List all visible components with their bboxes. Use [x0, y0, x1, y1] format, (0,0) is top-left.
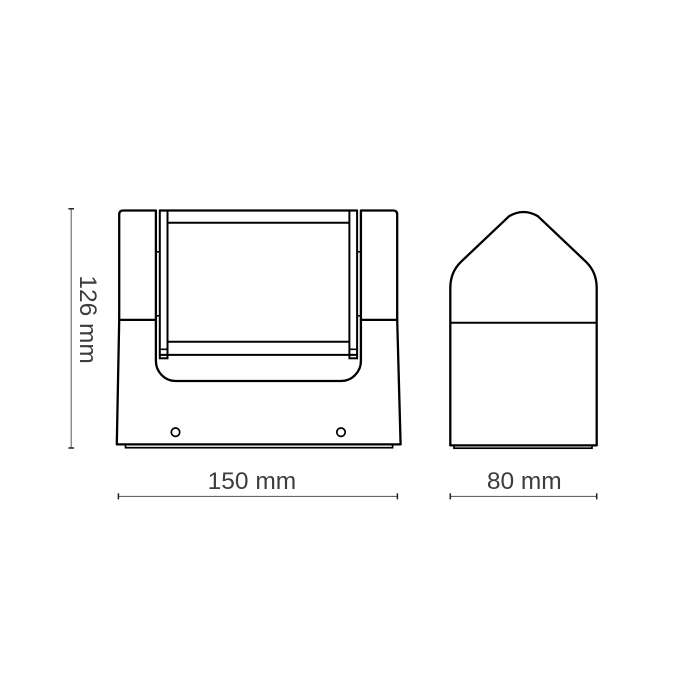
svg-text:80 mm: 80 mm	[487, 468, 562, 495]
svg-text:150 mm: 150 mm	[208, 468, 297, 495]
svg-text:126 mm: 126 mm	[74, 275, 101, 364]
